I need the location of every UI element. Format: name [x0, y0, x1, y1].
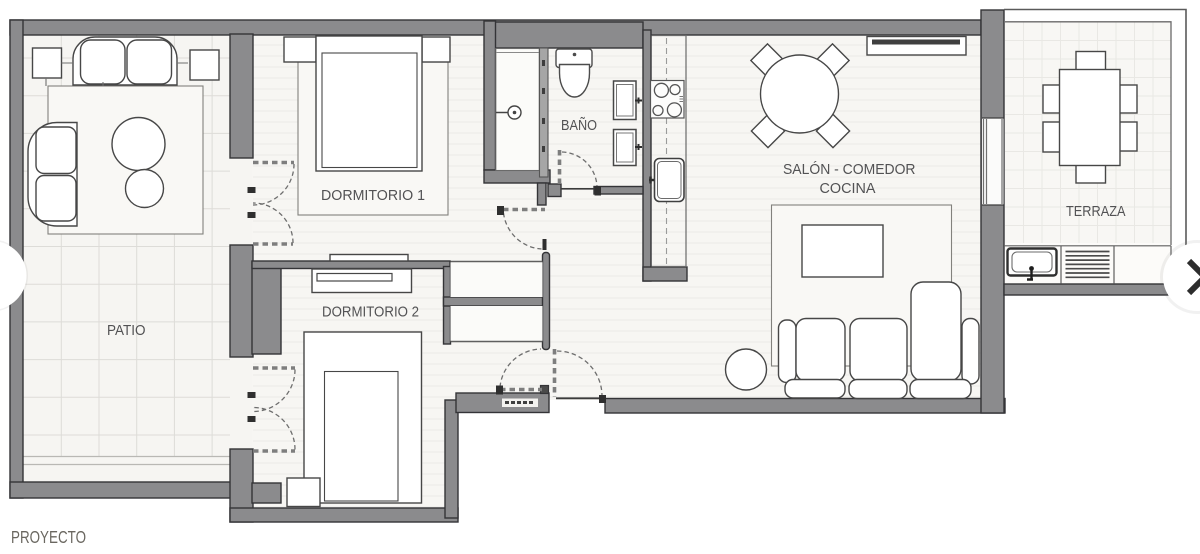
svg-text:PROYECTO: PROYECTO [11, 527, 86, 547]
svg-text:TERRAZA: TERRAZA [1066, 203, 1126, 220]
svg-text:COCINA: COCINA [820, 180, 876, 197]
svg-text:DORMITORIO 1: DORMITORIO 1 [321, 187, 425, 204]
svg-text:SALÓN - COMEDOR: SALÓN - COMEDOR [783, 161, 916, 178]
svg-text:BAÑO: BAÑO [561, 117, 597, 134]
svg-text:DORMITORIO 2: DORMITORIO 2 [322, 304, 419, 321]
svg-text:PATIO: PATIO [107, 322, 146, 339]
